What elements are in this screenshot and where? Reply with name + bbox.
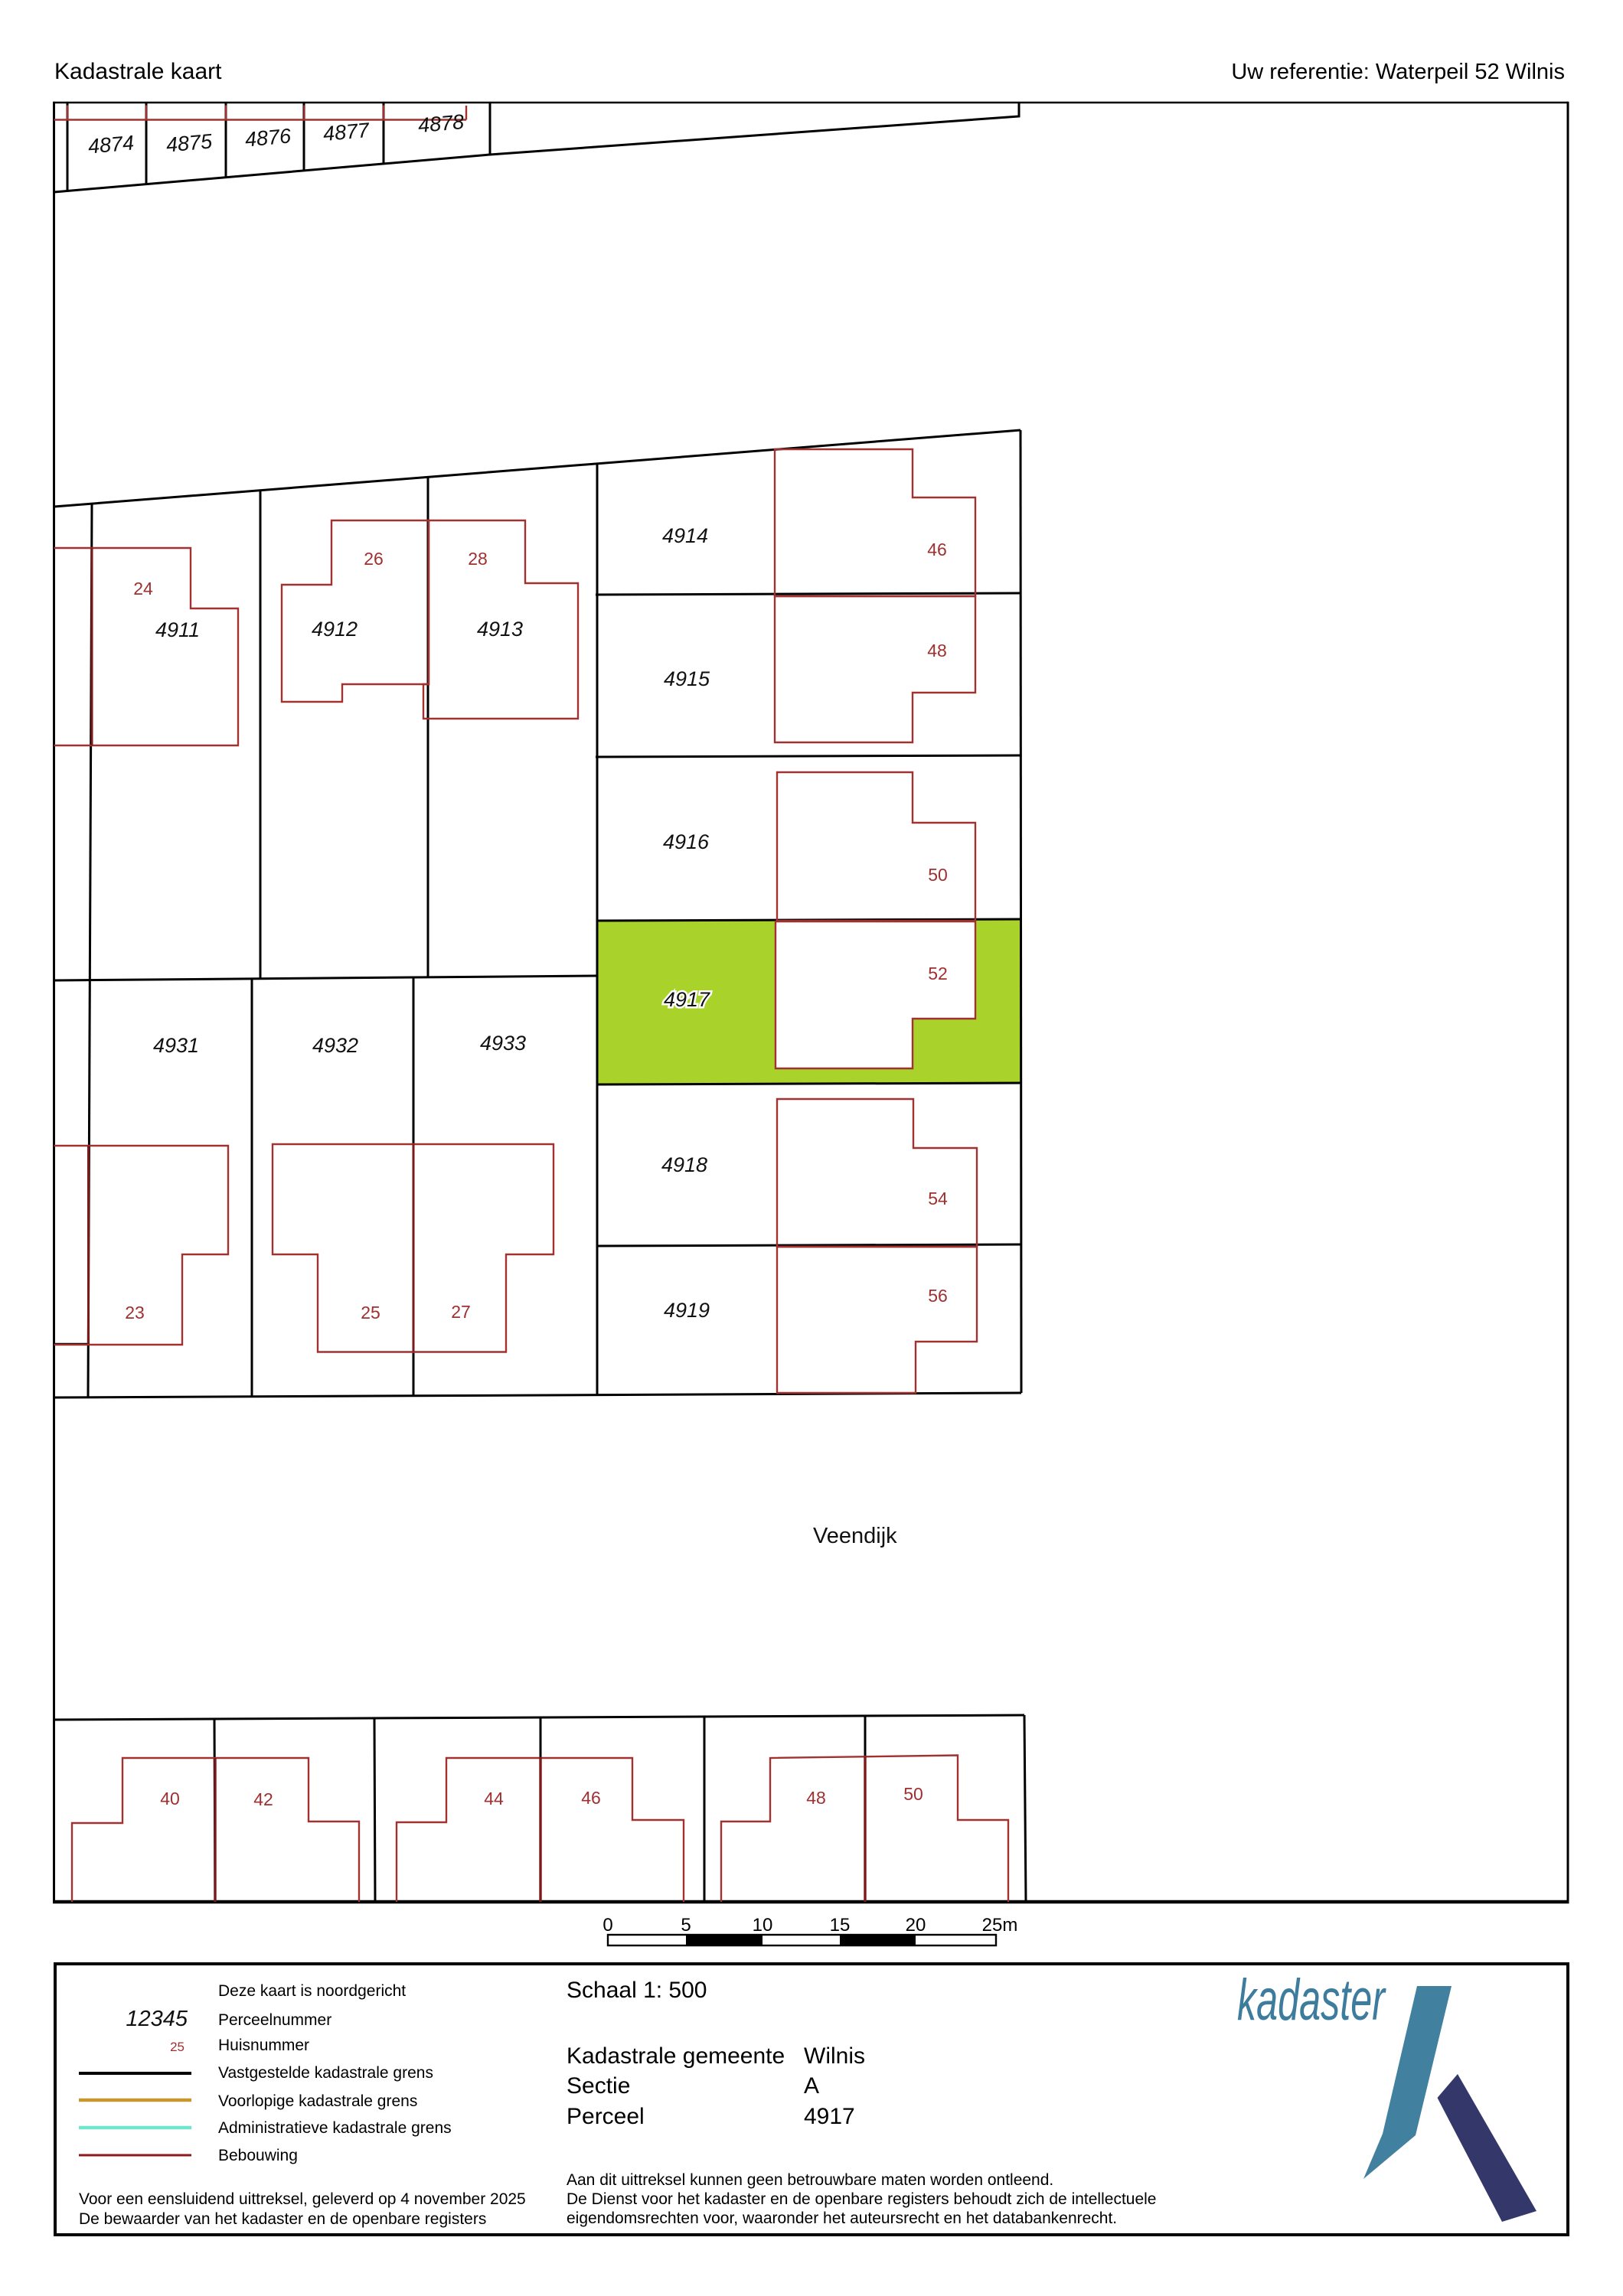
svg-text:De bewaarder van het kadaster: De bewaarder van het kadaster en de open… bbox=[79, 2210, 486, 2228]
svg-text:4874: 4874 bbox=[87, 131, 135, 158]
svg-text:4875: 4875 bbox=[165, 129, 214, 156]
svg-text:4876: 4876 bbox=[244, 124, 292, 151]
svg-text:54: 54 bbox=[928, 1189, 948, 1208]
svg-text:4913: 4913 bbox=[477, 618, 523, 641]
svg-text:26: 26 bbox=[364, 549, 384, 569]
svg-text:4918: 4918 bbox=[661, 1153, 707, 1176]
svg-text:10: 10 bbox=[753, 1915, 773, 1936]
svg-text:42: 42 bbox=[253, 1789, 273, 1809]
svg-text:4878: 4878 bbox=[417, 110, 465, 137]
svg-text:4931: 4931 bbox=[153, 1034, 199, 1057]
svg-text:24: 24 bbox=[133, 579, 153, 598]
svg-text:27: 27 bbox=[451, 1302, 471, 1322]
svg-text:25: 25 bbox=[361, 1303, 380, 1322]
svg-text:12345: 12345 bbox=[126, 2007, 188, 2031]
svg-text:25m: 25m bbox=[982, 1915, 1018, 1936]
svg-text:4877: 4877 bbox=[322, 119, 371, 145]
svg-text:48: 48 bbox=[927, 641, 947, 660]
svg-text:0: 0 bbox=[603, 1915, 612, 1936]
svg-text:20: 20 bbox=[906, 1915, 926, 1936]
svg-text:4917: 4917 bbox=[664, 988, 710, 1011]
svg-text:28: 28 bbox=[468, 549, 488, 569]
svg-text:De Dienst voor het kadaster en: De Dienst voor het kadaster en de openba… bbox=[567, 2190, 1156, 2208]
svg-text:5: 5 bbox=[681, 1915, 691, 1936]
svg-text:Huisnummer: Huisnummer bbox=[218, 2037, 309, 2054]
svg-text:Kadastrale gemeente: Kadastrale gemeente bbox=[567, 2043, 785, 2069]
svg-text:4932: 4932 bbox=[312, 1034, 358, 1057]
svg-text:Bebouwing: Bebouwing bbox=[218, 2147, 298, 2164]
svg-text:4916: 4916 bbox=[663, 830, 710, 853]
svg-text:4914: 4914 bbox=[662, 524, 708, 547]
svg-text:4911: 4911 bbox=[155, 618, 200, 641]
svg-text:Deze kaart is noordgericht: Deze kaart is noordgericht bbox=[218, 1982, 406, 2000]
svg-text:Uw referentie: Waterpeil 52 Wi: Uw referentie: Waterpeil 52 Wilnis bbox=[1231, 60, 1565, 84]
svg-text:Perceelnummer: Perceelnummer bbox=[218, 2011, 331, 2029]
svg-text:4919: 4919 bbox=[664, 1299, 710, 1322]
svg-text:4912: 4912 bbox=[312, 618, 358, 641]
svg-text:4933: 4933 bbox=[480, 1032, 526, 1055]
svg-text:Administratieve kadastrale gre: Administratieve kadastrale grens bbox=[218, 2119, 452, 2137]
svg-text:A: A bbox=[804, 2073, 819, 2099]
svg-text:Aan dit uittreksel kunnen geen: Aan dit uittreksel kunnen geen betrouwba… bbox=[567, 2171, 1053, 2189]
svg-text:Sectie: Sectie bbox=[567, 2073, 630, 2099]
svg-text:48: 48 bbox=[806, 1788, 826, 1808]
svg-text:52: 52 bbox=[928, 964, 948, 983]
svg-text:Schaal 1: 500: Schaal 1: 500 bbox=[567, 1978, 707, 2003]
svg-text:Vastgestelde kadastrale grens: Vastgestelde kadastrale grens bbox=[218, 2064, 433, 2082]
svg-text:46: 46 bbox=[581, 1788, 601, 1808]
svg-text:50: 50 bbox=[928, 865, 948, 885]
svg-text:40: 40 bbox=[160, 1789, 180, 1808]
svg-text:15: 15 bbox=[830, 1915, 851, 1936]
svg-text:23: 23 bbox=[125, 1303, 145, 1322]
svg-text:25: 25 bbox=[170, 2040, 185, 2054]
svg-text:kadaster: kadaster bbox=[1237, 1968, 1386, 2033]
svg-text:56: 56 bbox=[928, 1286, 948, 1306]
svg-text:44: 44 bbox=[484, 1789, 504, 1808]
svg-text:eigendomsrechten voor, waarond: eigendomsrechten voor, waaronder het aut… bbox=[567, 2210, 1117, 2227]
svg-text:4917: 4917 bbox=[804, 2104, 855, 2129]
svg-text:4915: 4915 bbox=[664, 667, 710, 690]
svg-text:46: 46 bbox=[927, 540, 947, 559]
svg-text:Kadastrale kaart: Kadastrale kaart bbox=[54, 59, 222, 84]
svg-text:Perceel: Perceel bbox=[567, 2104, 645, 2129]
svg-text:50: 50 bbox=[903, 1784, 923, 1804]
svg-text:Voor een eensluidend uittrekse: Voor een eensluidend uittreksel, gelever… bbox=[79, 2190, 526, 2208]
svg-text:Veendijk: Veendijk bbox=[813, 1524, 897, 1548]
svg-text:Voorlopige kadastrale grens: Voorlopige kadastrale grens bbox=[218, 2092, 417, 2110]
svg-text:Wilnis: Wilnis bbox=[804, 2043, 865, 2069]
